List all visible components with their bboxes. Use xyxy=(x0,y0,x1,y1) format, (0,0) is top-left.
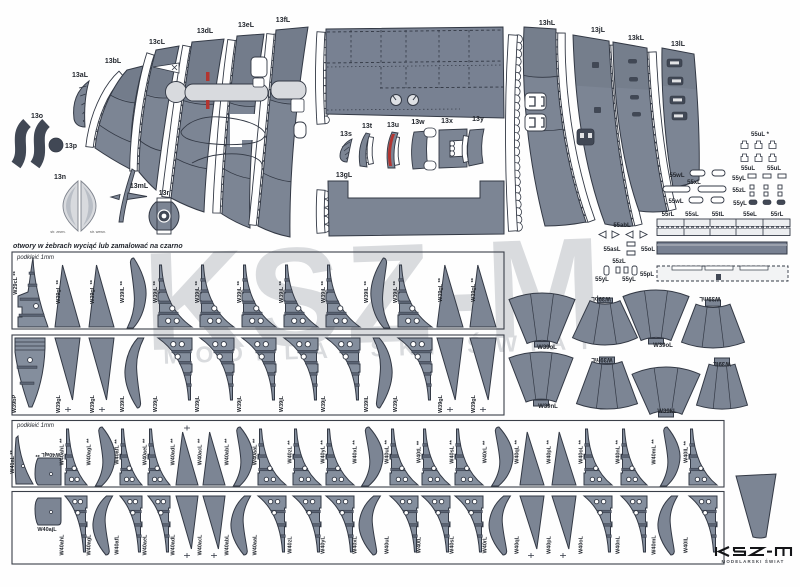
svg-text:13o: 13o xyxy=(31,113,43,120)
svg-text:W40abL: W40abL xyxy=(225,534,231,556)
svg-text:13kL: 13kL xyxy=(628,35,645,42)
svg-text:55zL: 55zL xyxy=(612,259,626,265)
svg-text:W40acL: W40acL xyxy=(198,534,204,555)
svg-text:MODELARSKI ŚWIAT: MODELARSKI ŚWIAT xyxy=(722,559,785,564)
svg-text:55wL: 55wL xyxy=(668,199,683,205)
svg-text:W40pL: W40pL xyxy=(547,535,553,554)
svg-text:W29cL **: W29cL ** xyxy=(13,270,19,294)
svg-text:W40rL **: W40rL ** xyxy=(483,440,489,463)
svg-text:W39oL: W39oL xyxy=(537,345,557,351)
svg-text:13p: 13p xyxy=(65,143,77,150)
svg-text:W39gL: W39gL xyxy=(471,394,477,413)
svg-text:W40uL: W40uL xyxy=(385,535,391,554)
svg-text:W40rL: W40rL xyxy=(483,536,489,553)
svg-text:W39mL: W39mL xyxy=(699,295,721,301)
svg-text:W39oL: W39oL xyxy=(653,343,673,349)
svg-text:55uL: 55uL xyxy=(741,166,755,172)
svg-text:W39jL: W39jL xyxy=(237,395,243,412)
svg-text:W39gL **: W39gL ** xyxy=(438,277,444,302)
svg-text:W40tL **: W40tL ** xyxy=(417,440,423,463)
svg-text:W39jL: W39jL xyxy=(279,395,285,412)
svg-text:55rL: 55rL xyxy=(662,212,675,218)
svg-text:13jL: 13jL xyxy=(591,27,606,34)
svg-text:55yL: 55yL xyxy=(733,201,747,207)
svg-text:13hL: 13hL xyxy=(539,20,556,27)
svg-text:W39kL: W39kL xyxy=(657,409,677,415)
svg-text:W40ahL: W40ahL xyxy=(60,534,66,556)
svg-text:13cL: 13cL xyxy=(149,39,166,46)
svg-text:W40acL **: W40acL ** xyxy=(198,438,204,465)
svg-text:55yL: 55yL xyxy=(595,277,609,283)
svg-text:W40qL: W40qL xyxy=(515,535,521,554)
svg-text:55yL: 55yL xyxy=(622,277,636,283)
svg-text:13lL: 13lL xyxy=(671,41,686,48)
svg-text:W40afL: W40afL xyxy=(115,535,121,555)
svg-text:podkleić 1mm: podkleić 1mm xyxy=(16,255,54,261)
svg-text:W40ajL **: W40ajL ** xyxy=(35,451,61,457)
svg-text:W39nL: W39nL xyxy=(538,404,558,410)
svg-text:W40aaL **: W40aaL ** xyxy=(253,438,259,465)
svg-text:W40ahL **: W40ahL ** xyxy=(60,438,66,466)
svg-text:13t: 13t xyxy=(362,123,373,130)
svg-text:55oL: 55oL xyxy=(641,247,655,253)
svg-text:W39lL: W39lL xyxy=(120,395,126,412)
svg-text:W40adL **: W40adL ** xyxy=(171,438,177,466)
svg-text:55wL: 55wL xyxy=(669,173,684,179)
svg-text:W40mL: W40mL xyxy=(652,535,658,555)
svg-text:13w: 13w xyxy=(411,119,425,126)
svg-text:13fL: 13fL xyxy=(276,17,291,24)
svg-text:W39gL **: W39gL ** xyxy=(56,279,62,304)
svg-text:13aL: 13aL xyxy=(72,72,89,79)
svg-text:55xL: 55xL xyxy=(687,180,701,186)
svg-text:13r: 13r xyxy=(159,190,170,197)
svg-text:W40zL **: W40zL ** xyxy=(288,440,294,464)
svg-text:13s: 13s xyxy=(340,131,352,138)
svg-text:W39jL **: W39jL ** xyxy=(393,280,399,303)
svg-text:W40sL **: W40sL ** xyxy=(450,439,456,463)
svg-text:55asL: 55asL xyxy=(603,247,620,253)
svg-text:13y: 13y xyxy=(472,116,484,123)
svg-text:W40nL: W40nL xyxy=(616,535,622,554)
svg-text:W40pL **: W40pL ** xyxy=(547,439,553,464)
svg-text:W39gL **: W39gL ** xyxy=(90,279,96,304)
svg-text:W40agL **: W40agL ** xyxy=(87,438,93,466)
svg-text:W40uL **: W40uL ** xyxy=(385,439,391,464)
svg-text:W39gL **: W39gL ** xyxy=(471,277,477,302)
svg-text:W39lL: W39lL xyxy=(713,360,731,366)
svg-text:W39jL **: W39jL ** xyxy=(279,280,285,303)
svg-text:W39jL: W39jL xyxy=(195,395,201,412)
svg-text:55uL: 55uL xyxy=(767,166,781,172)
svg-text:W40yL **: W40yL ** xyxy=(321,439,327,463)
svg-text:55uL *: 55uL * xyxy=(751,132,770,138)
svg-text:W40aeL **: W40aeL ** xyxy=(143,438,149,465)
svg-text:W40nL **: W40nL ** xyxy=(616,439,622,464)
svg-text:W40afL **: W40afL ** xyxy=(115,439,121,465)
svg-text:W39jL: W39jL xyxy=(153,395,159,412)
svg-text:otwory w żebrach wyciąć lub za: otwory w żebrach wyciąć lub zamalować na… xyxy=(13,243,183,250)
svg-text:W39jL: W39jL xyxy=(393,395,399,412)
svg-text:13dL: 13dL xyxy=(197,28,214,35)
svg-text:W41aL **: W41aL ** xyxy=(10,449,16,473)
svg-text:13gL: 13gL xyxy=(336,172,353,179)
svg-text:W39jL **: W39jL ** xyxy=(153,280,159,303)
svg-text:W39gL: W39gL xyxy=(90,394,96,413)
svg-text:W39gL: W39gL xyxy=(438,394,444,413)
svg-text:13n: 13n xyxy=(54,174,66,181)
svg-text:55rL: 55rL xyxy=(771,212,784,218)
svg-text:W40aeL: W40aeL xyxy=(143,534,149,555)
svg-text:W39jL **: W39jL ** xyxy=(195,280,201,303)
svg-text:W40tL: W40tL xyxy=(417,536,423,553)
svg-text:str. wewn.: str. wewn. xyxy=(90,230,106,234)
svg-text:W40oL: W40oL xyxy=(579,535,585,554)
svg-text:13mL: 13mL xyxy=(130,183,149,190)
svg-text:W40aaL: W40aaL xyxy=(253,534,259,555)
svg-text:W40oL **: W40oL ** xyxy=(579,439,585,464)
svg-text:W39jL **: W39jL ** xyxy=(321,280,327,303)
svg-text:W40adL: W40adL xyxy=(171,534,177,556)
svg-text:55tL: 55tL xyxy=(712,212,725,218)
svg-text:W39bP: W39bP xyxy=(12,395,18,414)
svg-text:13u: 13u xyxy=(387,122,399,129)
svg-text:W40lL **: W40lL ** xyxy=(684,440,690,463)
svg-text:W40yL: W40yL xyxy=(321,535,327,553)
svg-text:podkleić 1mm: podkleić 1mm xyxy=(16,423,54,429)
svg-text:W40qL **: W40qL ** xyxy=(515,439,521,464)
svg-text:13bL: 13bL xyxy=(105,58,122,65)
svg-text:W40xL: W40xL xyxy=(353,535,359,553)
svg-text:55yL: 55yL xyxy=(732,176,746,182)
svg-text:55zL: 55zL xyxy=(732,188,746,194)
svg-text:W39lL: W39lL xyxy=(364,395,370,412)
svg-text:W39lL **: W39lL ** xyxy=(364,280,370,303)
svg-text:str. zewn.: str. zewn. xyxy=(50,230,65,234)
svg-text:13x: 13x xyxy=(441,118,453,125)
svg-text:W40sL: W40sL xyxy=(450,535,456,553)
svg-text:W40ajL: W40ajL xyxy=(37,527,57,533)
svg-text:13eL: 13eL xyxy=(238,22,255,29)
svg-text:W39pL: W39pL xyxy=(591,295,611,301)
svg-text:W39lL **: W39lL ** xyxy=(120,280,126,303)
svg-text:W40xL **: W40xL ** xyxy=(353,439,359,463)
svg-text:W40agL: W40agL xyxy=(87,534,93,556)
svg-text:W39gL: W39gL xyxy=(56,394,62,413)
svg-text:W39jL: W39jL xyxy=(321,395,327,412)
svg-text:W39mL: W39mL xyxy=(591,356,613,362)
svg-text:55abL: 55abL xyxy=(613,223,631,229)
svg-text:55pL: 55pL xyxy=(640,272,654,278)
svg-text:55eL: 55eL xyxy=(743,212,757,218)
svg-text:W40abL **: W40abL ** xyxy=(225,438,231,466)
svg-text:W39jL **: W39jL ** xyxy=(237,280,243,303)
svg-text:W40mL **: W40mL ** xyxy=(652,439,658,465)
svg-text:55sL: 55sL xyxy=(685,212,699,218)
svg-text:W40zL: W40zL xyxy=(288,536,294,554)
svg-text:W40lL: W40lL xyxy=(684,536,690,553)
